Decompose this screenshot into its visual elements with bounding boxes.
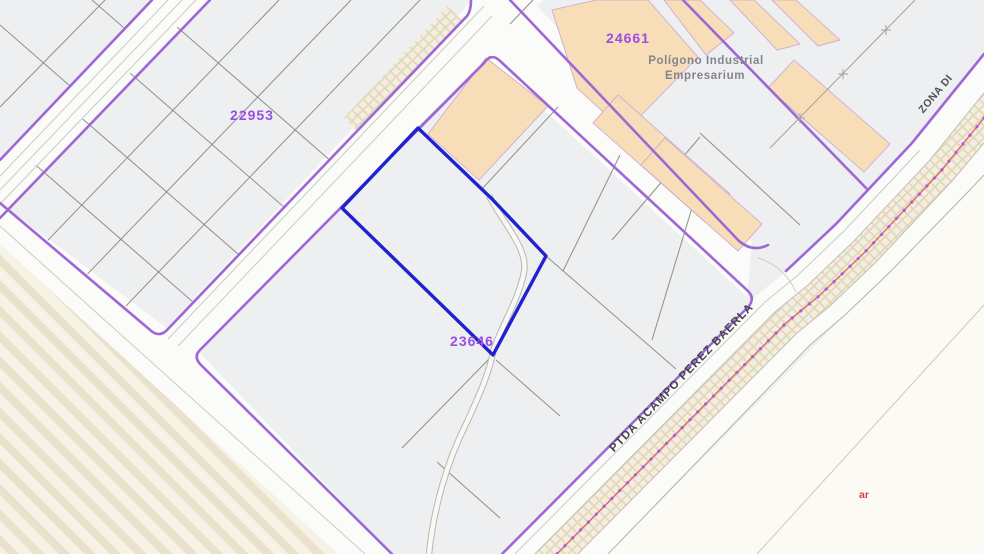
parcel-label-24661[interactable]: 24661	[606, 30, 650, 46]
parcel-label-22953[interactable]: 22953	[230, 107, 274, 123]
annotation-ar: ar	[859, 489, 869, 501]
cadastral-map-viewport: 22953 24661 23646 Polígono Industrial Em…	[0, 0, 984, 554]
parcel-label-23646[interactable]: 23646	[450, 333, 494, 349]
map-canvas[interactable]: 22953 24661 23646 Polígono Industrial Em…	[0, 0, 984, 554]
industrial-estate-label-line2: Empresarium	[665, 70, 745, 82]
industrial-estate-label-line1: Polígono Industrial	[648, 55, 764, 67]
